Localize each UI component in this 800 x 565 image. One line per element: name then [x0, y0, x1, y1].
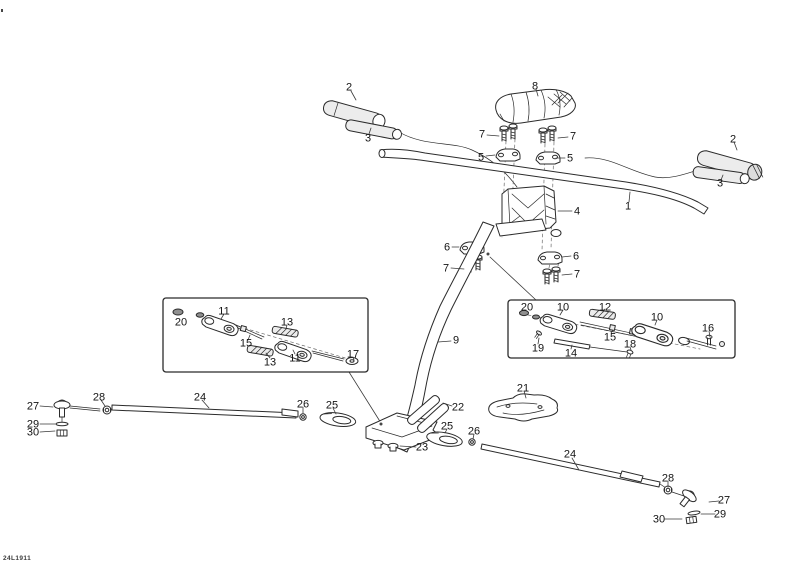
callout-label: 25: [441, 421, 453, 433]
callout-label: 2: [346, 82, 352, 94]
callout-label: 9: [453, 335, 459, 347]
callout-label: 27: [27, 401, 39, 413]
callout-label: 30: [653, 514, 665, 526]
part-24-tie-rod-left: [112, 405, 298, 418]
leader-line: [562, 274, 572, 275]
callout-label: 29: [714, 509, 726, 521]
tie-rod-left-threads: [70, 406, 100, 411]
callout-label: 15: [604, 332, 616, 344]
callout-label: 8: [532, 81, 538, 93]
callout-label: 27: [718, 495, 730, 507]
part-26-nut-left: [300, 414, 306, 420]
callout-label: 24: [194, 392, 206, 404]
leader-line: [558, 137, 568, 138]
diagram-canvas: 24L1911: [0, 0, 800, 565]
leader-line: [486, 155, 495, 156]
callout-label: 19: [532, 343, 544, 355]
callout-label: 7: [479, 129, 485, 141]
parts-diagram-page: 24L1911: [0, 0, 800, 565]
callout-label: 26: [468, 426, 480, 438]
callout-label: 7: [570, 131, 576, 143]
part-27-29-30-balljoint-left: [54, 400, 70, 436]
callout-label: 18: [624, 339, 636, 351]
callout-label: 7: [443, 263, 449, 275]
callout-label: 12: [599, 302, 611, 314]
callout-label: 24: [564, 449, 576, 461]
callout-label: 10: [651, 312, 663, 324]
callout-label: 28: [662, 473, 674, 485]
part-7-screws-upper: [500, 124, 556, 143]
callout-label: 30: [27, 427, 39, 439]
leader-line: [438, 341, 451, 342]
part-25-sleeve-left: [319, 411, 356, 429]
callout-label: 6: [444, 242, 450, 254]
part-25-sleeve-right: [426, 430, 464, 449]
part-28-nut-left: [103, 406, 111, 414]
part-21-plate: [489, 394, 558, 421]
callout-label: 10: [557, 302, 569, 314]
callout-label: 13: [264, 357, 276, 369]
callout-layer: 2387575231467679201113151311172010121016…: [27, 81, 737, 526]
callout-label: 20: [175, 317, 187, 329]
callout-label: 5: [567, 153, 573, 165]
page-corner-mark: [1, 9, 3, 12]
callout-label: 5: [478, 152, 484, 164]
part-8-pad: [496, 89, 576, 123]
leader-line: [40, 431, 55, 432]
callout-label: 2: [730, 134, 736, 146]
callout-label: 16: [702, 323, 714, 335]
callout-label: 22: [452, 402, 464, 414]
part-20-cap: [173, 309, 183, 315]
callout-label: 17: [347, 349, 359, 361]
callout-label: 28: [93, 392, 105, 404]
part-10-rod-end: [630, 322, 674, 347]
callout-label: 4: [574, 206, 580, 218]
callout-label: 11: [218, 306, 229, 318]
callout-label: 3: [365, 133, 371, 145]
callout-label: 26: [297, 399, 309, 411]
callout-label: 25: [326, 400, 338, 412]
part-16-bolt: [686, 335, 725, 349]
part-26-nut-right: [469, 439, 475, 445]
callout-label: 7: [574, 269, 580, 281]
callout-label: 3: [717, 178, 723, 190]
part-27-29-30-balljoint-right: [672, 487, 700, 524]
callout-label: 6: [573, 251, 579, 263]
part-5-clamps: [496, 149, 560, 164]
callout-label: 21: [517, 383, 529, 395]
part-10-rod-end: [539, 313, 578, 334]
leader-line: [487, 135, 499, 136]
leader-line: [562, 256, 571, 257]
leader-line: [40, 406, 53, 407]
callout-label: 11: [289, 353, 300, 365]
callout-label: 15: [240, 338, 252, 350]
callout-label: 23: [416, 442, 428, 454]
doc-code: 24L1911: [3, 555, 31, 562]
callout-label: 1: [625, 201, 631, 213]
callout-label: 20: [521, 302, 533, 314]
callout-label: 13: [281, 317, 293, 329]
part-19-screw: [533, 330, 542, 339]
part-18-bolt: [625, 349, 633, 358]
callout-label: 14: [565, 348, 577, 360]
